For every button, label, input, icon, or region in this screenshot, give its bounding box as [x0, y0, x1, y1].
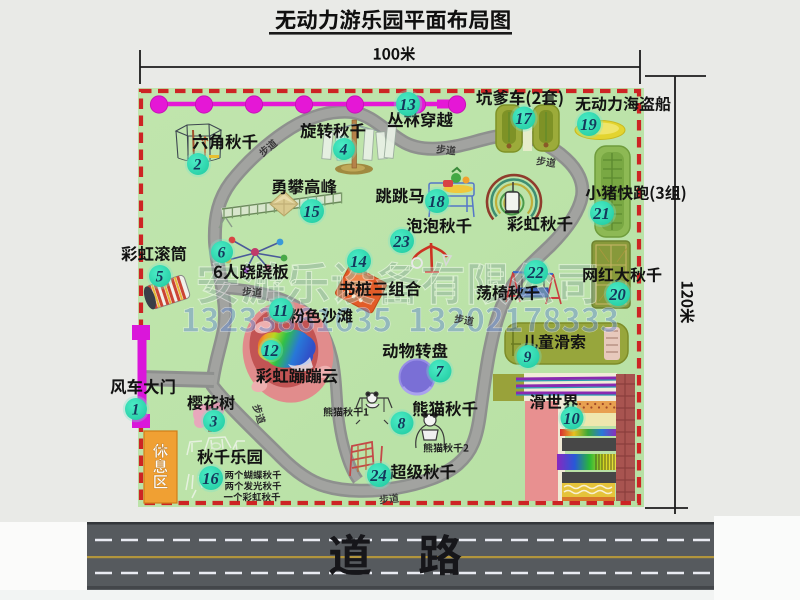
svg-text:10: 10 [563, 409, 580, 428]
svg-text:7: 7 [436, 364, 445, 381]
svg-text:23: 23 [392, 232, 410, 251]
svg-text:21: 21 [592, 204, 610, 223]
svg-text:24: 24 [369, 466, 387, 485]
svg-text:11: 11 [273, 301, 289, 320]
svg-text:6: 6 [218, 245, 226, 262]
svg-text:15: 15 [303, 202, 320, 221]
svg-text:13: 13 [399, 95, 416, 114]
svg-text:2: 2 [193, 157, 202, 174]
svg-text:14: 14 [350, 252, 367, 271]
svg-text:3: 3 [209, 414, 218, 431]
svg-text:5: 5 [156, 269, 164, 286]
svg-text:22: 22 [526, 263, 544, 282]
svg-text:16: 16 [202, 469, 219, 488]
svg-text:20: 20 [608, 285, 626, 304]
svg-text:17: 17 [515, 109, 532, 128]
svg-text:9: 9 [524, 349, 532, 366]
svg-text:19: 19 [580, 115, 597, 134]
svg-text:8: 8 [398, 416, 406, 433]
svg-text:1: 1 [132, 402, 140, 419]
svg-text:12: 12 [262, 341, 279, 360]
svg-text:4: 4 [339, 142, 348, 159]
svg-text:18: 18 [428, 192, 445, 211]
